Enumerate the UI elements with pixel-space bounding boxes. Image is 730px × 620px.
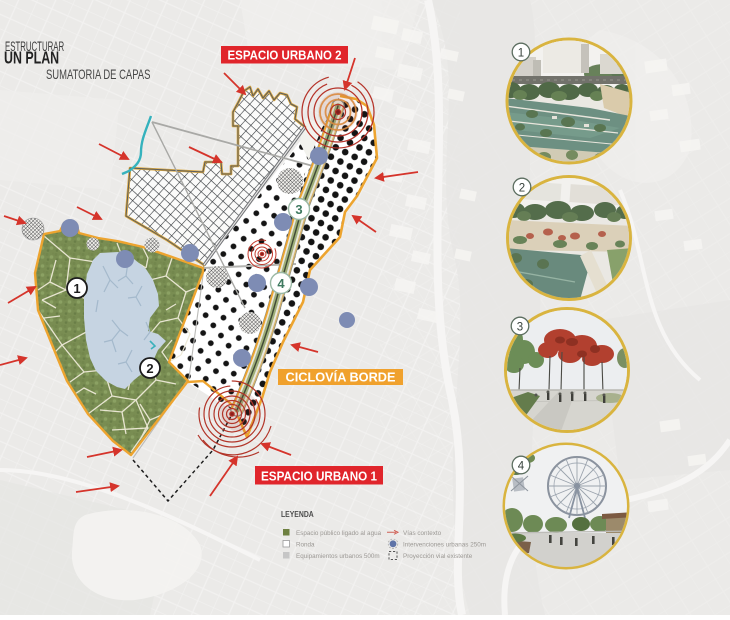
svg-text:Vías contexto: Vías contexto	[403, 530, 442, 537]
svg-text:CICLOVÍA BORDE: CICLOVÍA BORDE	[286, 370, 396, 385]
svg-text:ESPACIO URBANO 1: ESPACIO URBANO 1	[261, 469, 377, 484]
svg-text:Espacio público ligado al agua: Espacio público ligado al agua	[296, 530, 382, 537]
svg-text:Ronda: Ronda	[296, 542, 315, 549]
svg-text:2: 2	[519, 182, 525, 194]
svg-text:SUMATORIA DE CAPAS: SUMATORIA DE CAPAS	[46, 67, 151, 82]
svg-text:2: 2	[146, 361, 153, 376]
svg-text:LEYENDA: LEYENDA	[281, 510, 314, 520]
svg-text:4: 4	[277, 276, 285, 291]
svg-text:3: 3	[295, 202, 302, 217]
svg-text:UN PLAN: UN PLAN	[4, 49, 59, 69]
svg-text:1: 1	[518, 47, 524, 59]
svg-text:Proyección vial existente: Proyección vial existente	[403, 553, 473, 560]
svg-text:1: 1	[73, 281, 80, 296]
svg-text:Equipamientos urbanos 500m: Equipamientos urbanos 500m	[296, 553, 380, 560]
svg-text:4: 4	[518, 460, 525, 472]
svg-text:ESPACIO URBANO 2: ESPACIO URBANO 2	[228, 48, 342, 63]
svg-text:3: 3	[517, 321, 523, 333]
svg-text:Intervenciones urbanas 250m: Intervenciones urbanas 250m	[403, 542, 486, 549]
